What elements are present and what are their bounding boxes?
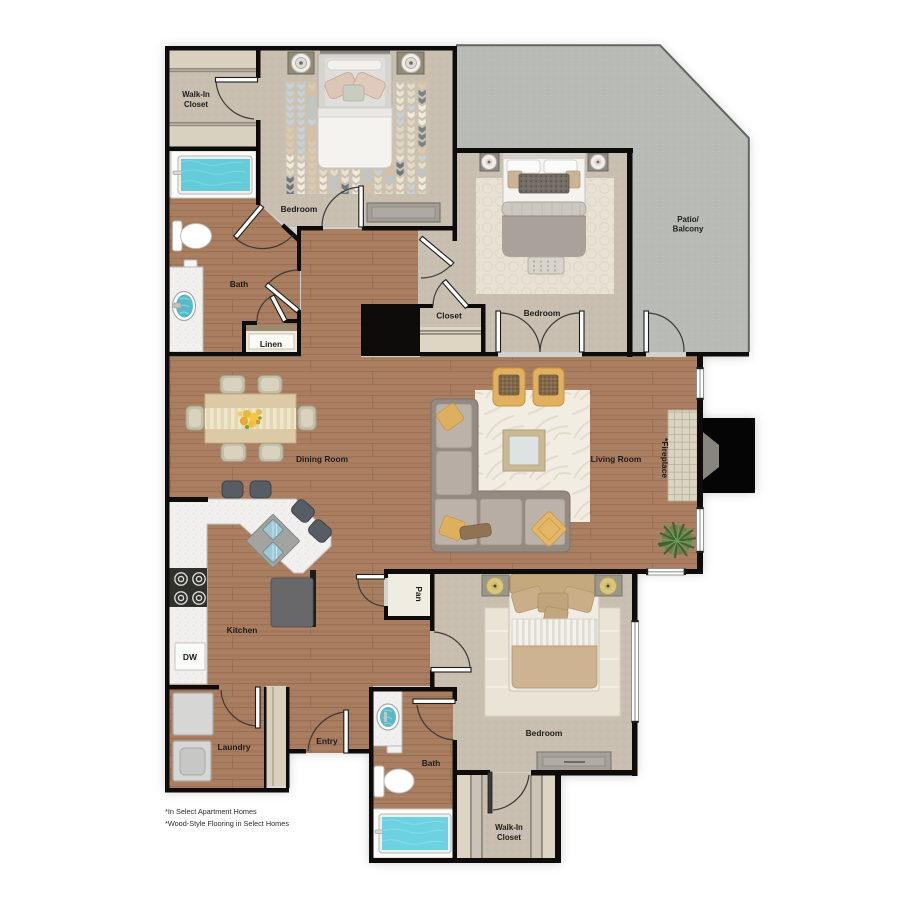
svg-text:Balcony: Balcony [673,225,704,234]
svg-text:Walk-In: Walk-In [182,90,210,99]
svg-text:Closet: Closet [184,100,208,109]
svg-text:*In Select Apartment Homes: *In Select Apartment Homes [165,807,257,816]
svg-text:Bath: Bath [230,279,249,289]
svg-text:Patio/: Patio/ [677,215,699,224]
svg-text:Bedroom: Bedroom [526,728,563,738]
svg-text:*Fireplace: *Fireplace [660,438,670,478]
svg-text:Laundry: Laundry [217,742,250,752]
svg-text:Closet: Closet [436,311,462,321]
svg-text:Entry: Entry [316,736,338,746]
svg-text:Walk-In: Walk-In [495,823,523,832]
svg-text:*Wood-Style Flooring in Select: *Wood-Style Flooring in Select Homes [165,819,289,828]
svg-text:Closet: Closet [497,833,521,842]
svg-text:Bedroom: Bedroom [281,204,318,214]
svg-text:Pan: Pan [414,586,424,601]
svg-text:Linen: Linen [260,339,282,349]
svg-text:Dining Room: Dining Room [296,454,348,464]
svg-text:Living Room: Living Room [591,454,642,464]
svg-text:Bath: Bath [422,758,441,768]
svg-text:Kitchen: Kitchen [227,625,258,635]
svg-text:Bedroom: Bedroom [524,308,561,318]
svg-text:DW: DW [183,652,198,662]
